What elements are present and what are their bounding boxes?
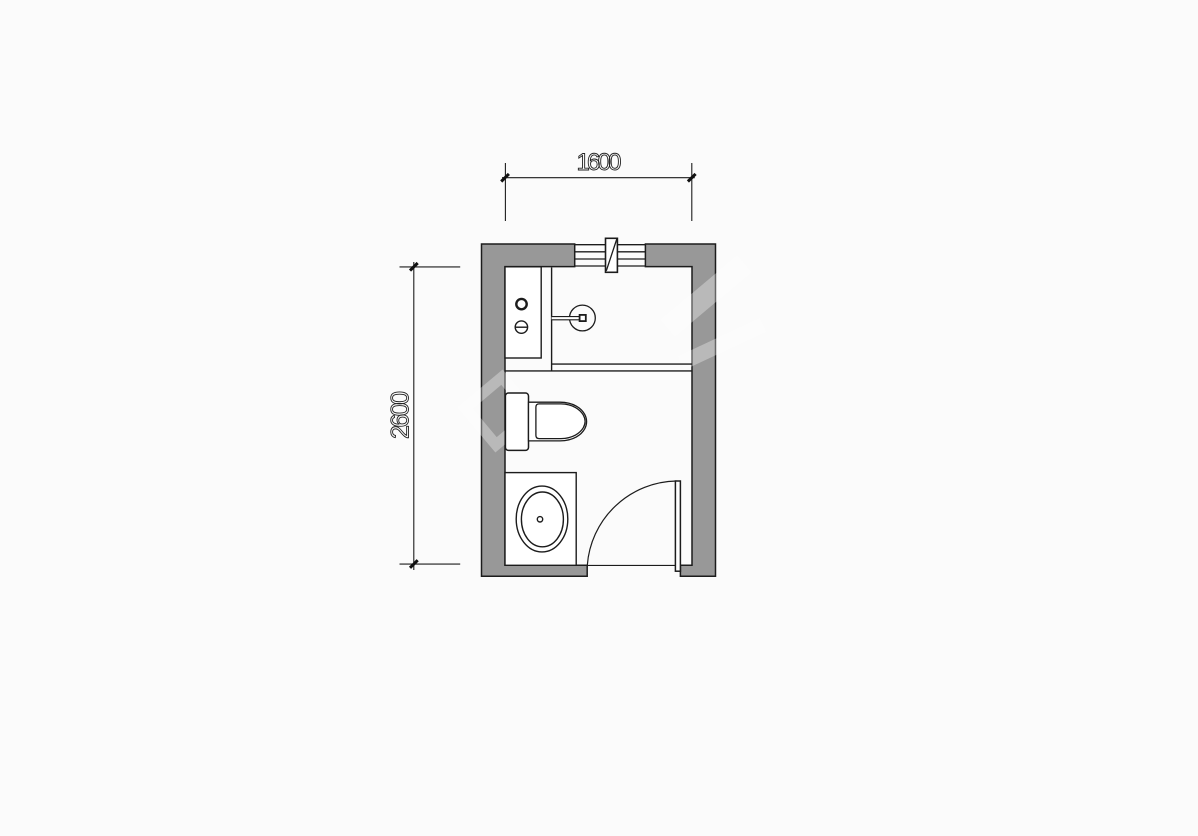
svg-text:2600: 2600 — [387, 391, 415, 439]
svg-text:1600: 1600 — [577, 149, 622, 176]
